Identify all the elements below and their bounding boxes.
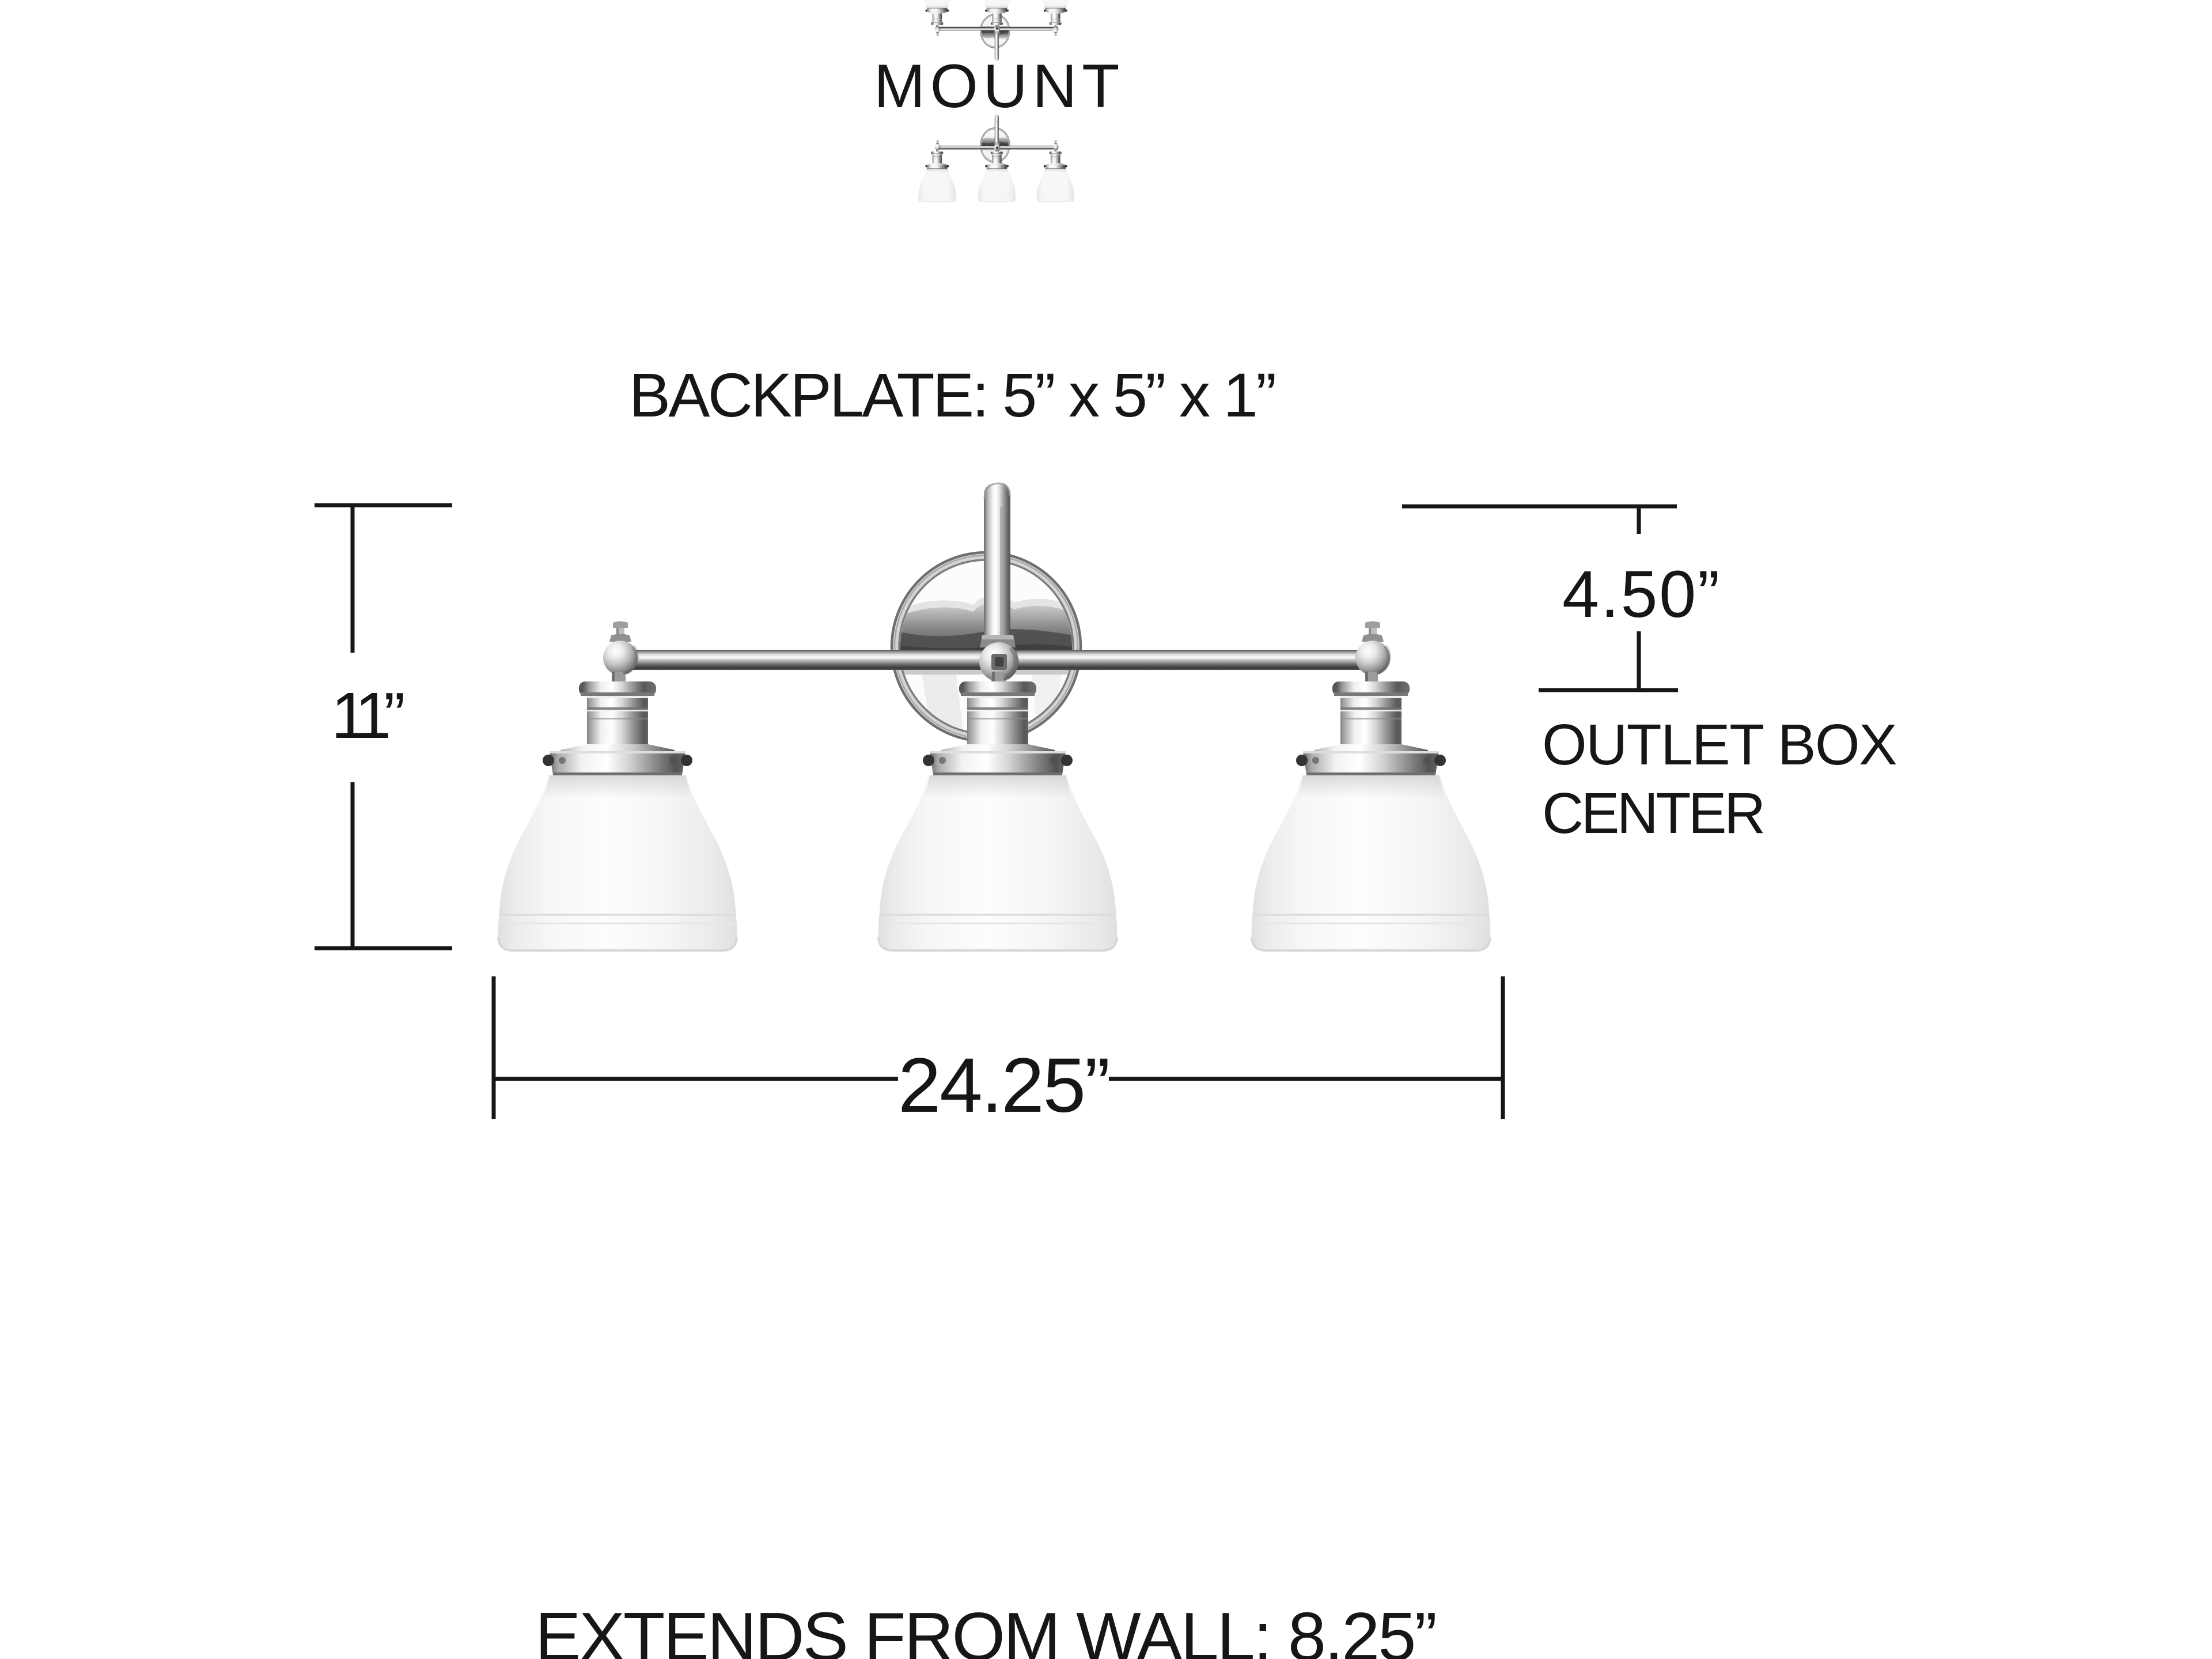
svg-text:BACKPLATE: 5” x 5” x 1”: BACKPLATE: 5” x 5” x 1” (629, 360, 1275, 430)
svg-text:24.25”: 24.25” (898, 1043, 1109, 1128)
svg-text:4.50”: 4.50” (1562, 558, 1721, 631)
svg-text:11”: 11” (331, 679, 403, 752)
svg-text:CENTER: CENTER (1542, 781, 1763, 846)
svg-text:MOUNT: MOUNT (874, 51, 1124, 120)
svg-text:OUTLET BOX: OUTLET BOX (1542, 713, 1896, 777)
svg-text:EXTENDS FROM WALL: 8.25”: EXTENDS FROM WALL: 8.25” (535, 1599, 1435, 1659)
